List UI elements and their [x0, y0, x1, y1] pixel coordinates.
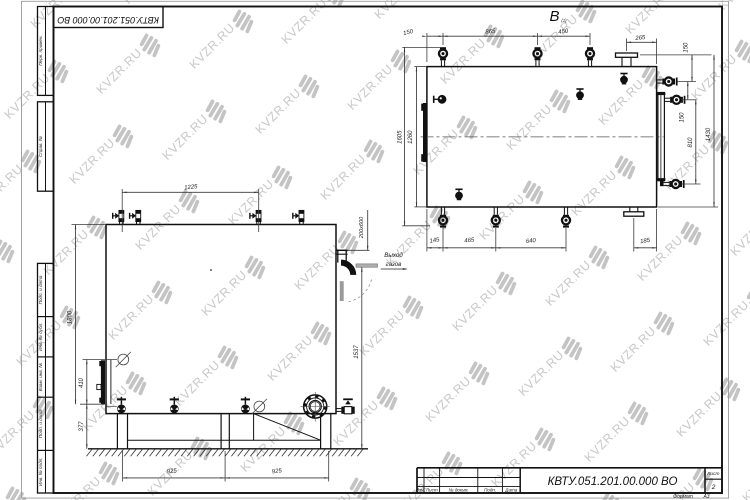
svg-text:Инв. № дубл.: Инв. № дубл. — [38, 323, 43, 351]
svg-text:2: 2 — [711, 484, 716, 491]
svg-text:Дата: Дата — [504, 488, 518, 493]
svg-text:(1): (1) — [561, 18, 567, 23]
svg-text:Перв. примен.: Перв. примен. — [38, 35, 43, 66]
svg-text:Лист: Лист — [706, 471, 719, 477]
svg-text:925: 925 — [272, 468, 283, 475]
svg-text:№ докум.: № докум. — [449, 488, 469, 493]
svg-text:1537: 1537 — [354, 345, 360, 359]
svg-text:КВТУ.051.201.00.000 ВО: КВТУ.051.201.00.000 ВО — [548, 476, 678, 488]
svg-text:865: 865 — [485, 29, 496, 36]
svg-text:Подп.: Подп. — [484, 488, 496, 493]
svg-text:150: 150 — [679, 112, 685, 123]
svg-text:925: 925 — [167, 468, 178, 475]
svg-text:А3: А3 — [702, 494, 709, 500]
svg-text:Справ. №: Справ. № — [38, 136, 43, 157]
svg-text:газов: газов — [386, 261, 403, 268]
svg-text:1800: 1800 — [68, 310, 74, 324]
svg-text:410: 410 — [79, 377, 85, 388]
svg-text:Инв. № подл.: Инв. № подл. — [38, 457, 43, 486]
svg-text:Подп. и дата: Подп. и дата — [38, 409, 43, 438]
svg-text:Взам. инв. №: Взам. инв. № — [38, 363, 43, 391]
svg-text:1605: 1605 — [397, 130, 403, 144]
svg-text:Выход: Выход — [384, 252, 403, 259]
svg-text:Лист: Лист — [425, 488, 438, 493]
svg-text:377: 377 — [79, 421, 85, 432]
svg-text:1430: 1430 — [706, 127, 712, 141]
svg-text:810: 810 — [688, 137, 694, 148]
svg-text:1260: 1260 — [408, 130, 414, 144]
svg-text:В: В — [549, 8, 559, 25]
svg-text:465: 465 — [464, 237, 475, 244]
svg-text:КВТУ.051.201.00.000 ВО: КВТУ.051.201.00.000 ВО — [57, 15, 159, 25]
svg-text:265: 265 — [634, 35, 646, 42]
svg-text:Формат: Формат — [673, 494, 693, 500]
svg-text:200х600: 200х600 — [359, 216, 365, 239]
svg-text:Изм.: Изм. — [416, 488, 426, 493]
svg-text:Подп. и дата: Подп. и дата — [38, 275, 43, 304]
svg-text:150: 150 — [683, 42, 689, 53]
svg-text:640: 640 — [526, 238, 537, 245]
